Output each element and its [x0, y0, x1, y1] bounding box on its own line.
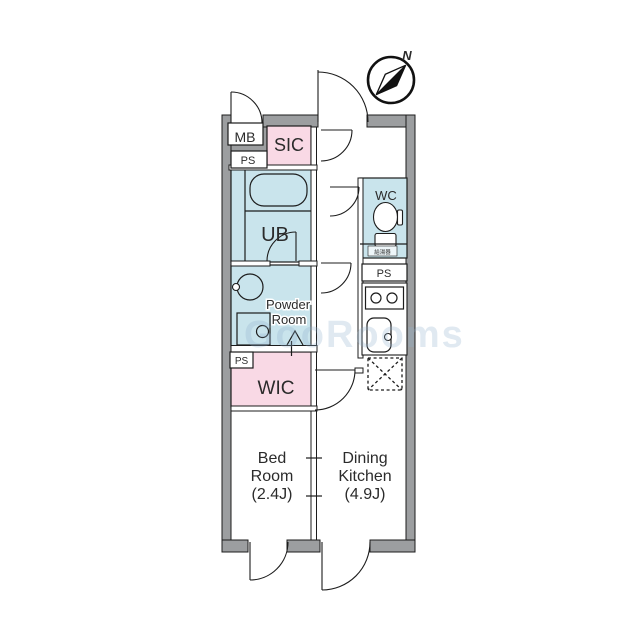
label-sic: SIC: [274, 135, 304, 155]
label-dk-2: Kitchen: [338, 468, 391, 485]
wall-ub-powder-left: [231, 261, 270, 266]
room-unit-bath: [231, 168, 312, 262]
bottom-wall-left: [222, 540, 248, 552]
top-wall-center: [263, 115, 318, 127]
entrance-door-arc: [318, 72, 368, 122]
left-wall: [222, 115, 231, 552]
toilet-handle: [398, 210, 403, 225]
label-water-heater: 給湯器: [374, 248, 391, 256]
bottom-wall-right: [370, 540, 415, 552]
wall-wic-bedroom: [231, 406, 317, 411]
meter-box-door-arc: [231, 92, 262, 123]
compass: N: [368, 48, 414, 103]
label-ub: UB: [261, 224, 289, 246]
sic-door-arc: [321, 130, 352, 161]
wall-ub-powder-right: [299, 261, 317, 266]
bedroom-window-arc: [250, 542, 288, 580]
label-powder-1: Powder: [266, 297, 311, 312]
label-dk-1: Dining: [342, 450, 387, 467]
dk-door-arc: [315, 370, 355, 410]
compass-needle-black: [376, 65, 406, 95]
label-wc: WC: [375, 188, 397, 203]
label-mb: MB: [235, 129, 256, 145]
north-label: N: [402, 48, 412, 63]
wc-door-arc: [330, 187, 359, 216]
label-ps-left: PS: [235, 356, 249, 367]
label-wic: WIC: [258, 378, 295, 399]
wall-dk-door-stub: [355, 368, 363, 373]
powder-door-arc: [321, 263, 351, 293]
label-powder-2: Room: [272, 312, 307, 327]
dk-window-arc: [322, 542, 370, 590]
label-ps-top: PS: [241, 155, 256, 167]
toilet-bowl: [374, 203, 398, 232]
label-bedroom-3: (2.4J): [252, 486, 293, 503]
bottom-wall-center: [287, 540, 320, 552]
washbasin-tap: [233, 284, 240, 291]
label-ps-right: PS: [377, 268, 392, 280]
label-dk-3: (4.9J): [345, 486, 386, 503]
label-bedroom-1: Bed: [258, 450, 286, 467]
label-bedroom-2: Room: [251, 468, 294, 485]
floor-plan-drawing: N GooRooms MB PS SIC UB WC 給湯器 PS Powder…: [0, 0, 640, 640]
floor-plan-page: N GooRooms MB PS SIC UB WC 給湯器 PS Powder…: [0, 0, 640, 640]
